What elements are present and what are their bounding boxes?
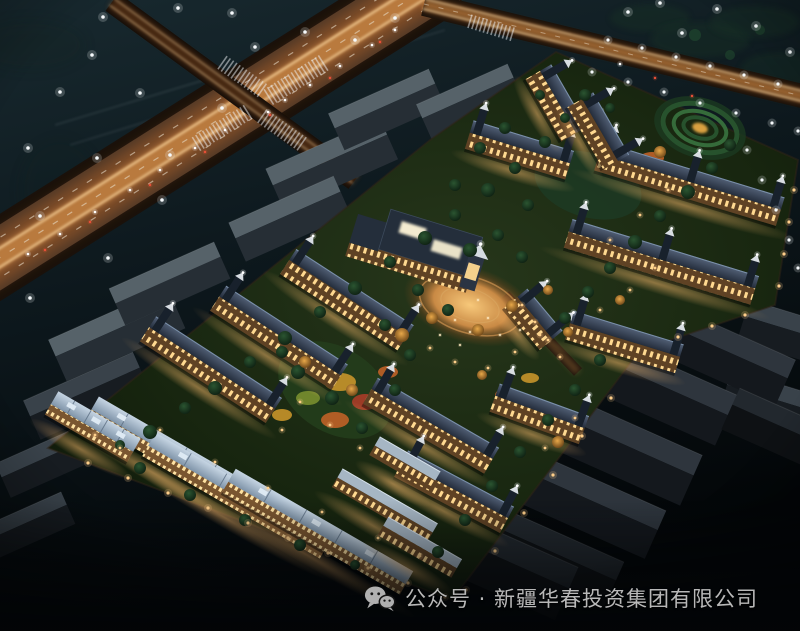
wechat-bubble-small-tail xyxy=(388,607,394,611)
wechat-eye xyxy=(377,592,380,595)
wechat-eye xyxy=(383,599,385,601)
night-aerial-rendering: 公众号 · 新疆华春投资集团有限公司 xyxy=(0,0,800,631)
wechat-eye xyxy=(370,592,373,595)
wechat-eye xyxy=(388,599,390,601)
wechat-bubble-small xyxy=(379,595,394,608)
wechat-bubble-large-tail xyxy=(367,602,374,608)
caption-bar: 公众号 · 新疆华春投资集团有限公司 xyxy=(364,583,758,613)
wechat-icon xyxy=(364,585,396,612)
scene-canvas xyxy=(0,0,800,631)
caption-text: 公众号 · 新疆华春投资集团有限公司 xyxy=(405,583,758,613)
